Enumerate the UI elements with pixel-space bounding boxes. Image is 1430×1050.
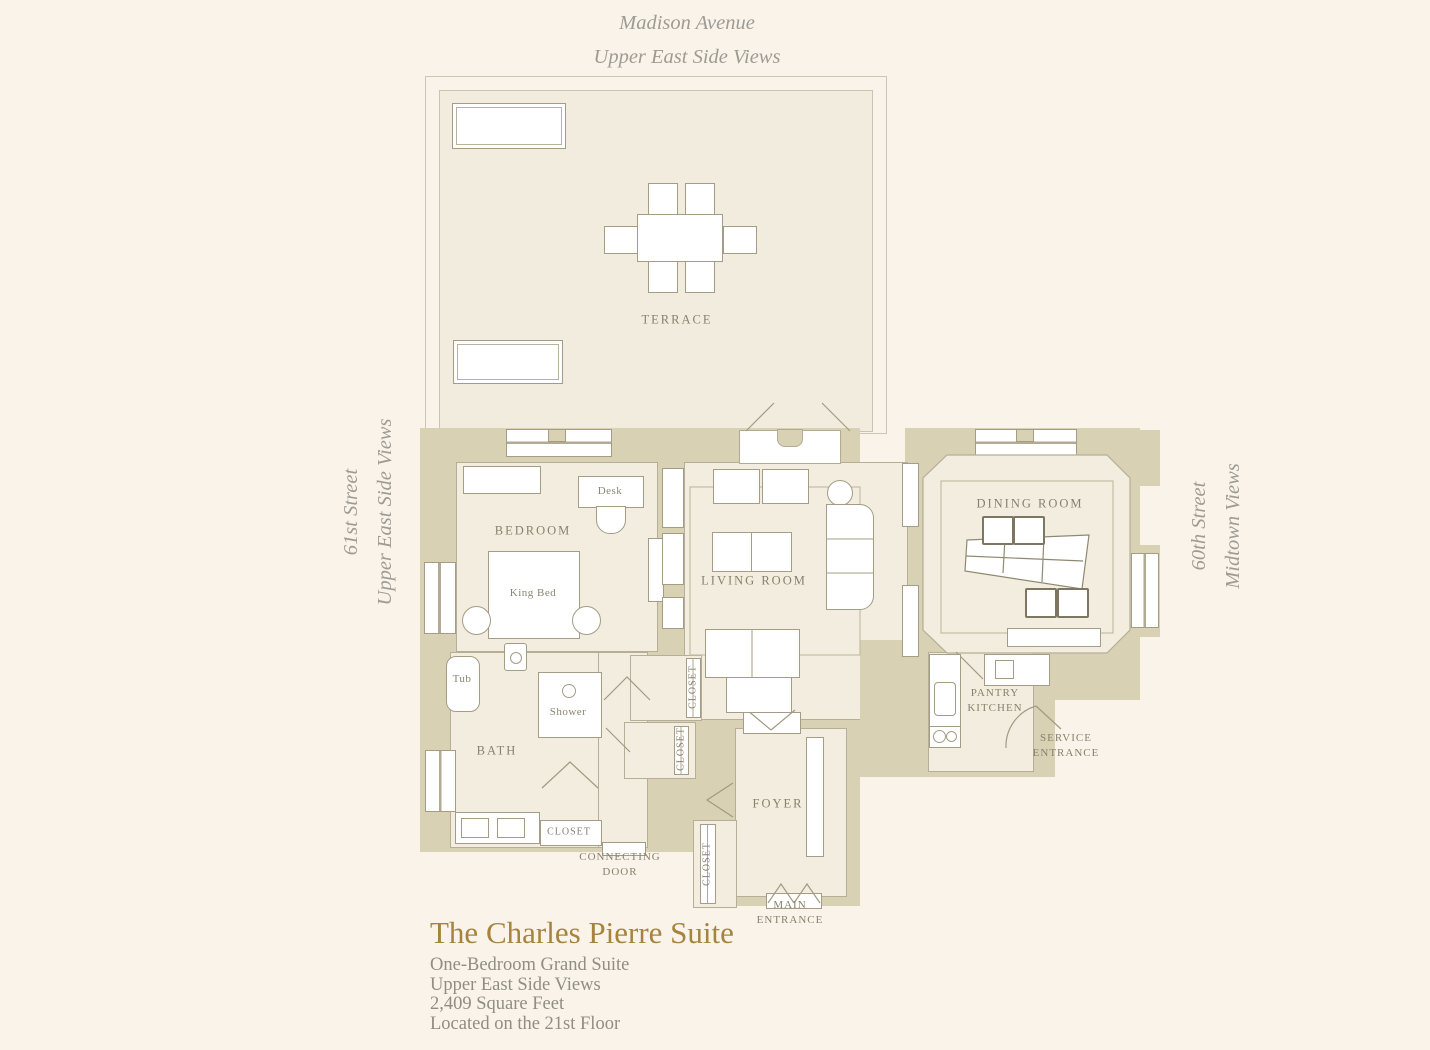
window-bath-west [425,750,456,812]
planter-inner-line [456,107,562,145]
connecting-door-line1: CONNECTING [579,850,661,865]
desk-label: Desk [598,485,623,497]
sink [497,818,525,838]
main-entrance-line1: MAIN [757,898,824,913]
sink [461,818,489,838]
street-label-top: Madison Avenue Upper East Side Views [437,6,937,74]
sofa-east [826,504,874,610]
dining-chair [1025,588,1057,618]
closet-d-label: CLOSET [702,842,713,886]
terrace-planter-top [452,103,566,149]
planter-inner-line [457,344,559,380]
dining-chair [1057,588,1089,618]
street-label-right: 60th Street Midtown Views [1182,326,1250,726]
tub-label: Tub [453,673,472,685]
window-mullion [1016,429,1034,442]
shower-stall [538,672,602,738]
window-dining-east [1131,553,1159,628]
living-west-builtin [662,533,684,585]
terrace-door-stop [777,429,803,447]
connecting-door-label: CONNECTING DOOR [579,850,661,880]
pantry-kitchen-label-line1: PANTRY [967,686,1022,701]
armchair [713,469,760,504]
floor-plan: Madison Avenue Upper East Side Views 61s… [0,0,1430,1050]
desk-chair [596,506,626,534]
sideboard [1007,628,1101,647]
side-table [827,480,853,506]
service-entrance-label: SERVICE ENTRANCE [1033,731,1100,761]
living-west-builtin [662,468,684,528]
terrace-chair [685,183,715,215]
nightstand [462,606,491,635]
suite-detail-area: 2,409 Square Feet [430,995,629,1015]
king-bed-label: King Bed [510,587,556,599]
suite-detail-type: One-Bedroom Grand Suite [430,956,629,976]
wall-dining-ne-bump [1138,430,1160,486]
street-right-line1: 60th Street [1182,326,1216,726]
sofa-south [705,629,800,678]
bench [726,677,792,713]
coffee-table [712,532,792,572]
dining-chair [982,516,1014,545]
suite-detail-views: Upper East Side Views [430,976,629,996]
armchair [762,469,809,504]
suite-details: One-Bedroom Grand Suite Upper East Side … [430,956,629,1034]
suite-title: The Charles Pierre Suite [430,915,734,951]
toilet-bowl [510,652,522,664]
window-bedroom-west [424,562,456,634]
terrace-chair [604,226,638,254]
terrace-label: TERRACE [642,313,713,328]
terrace-chair [648,183,678,215]
street-left-line1: 61st Street [334,312,368,712]
nightstand [572,606,601,635]
dining-chair [1013,516,1045,545]
connecting-door-line2: DOOR [579,865,661,880]
suite-detail-floor: Located on the 21st Floor [430,1015,629,1035]
pantry-cabinet [984,654,1050,686]
terrace-planter-bottom [453,340,563,384]
dining-room-label: DINING ROOM [976,497,1083,512]
pantry-sink [934,682,956,716]
bedroom-dresser [463,466,541,494]
street-left-line2: Upper East Side Views [368,312,402,712]
service-entrance-line2: ENTRANCE [1033,746,1100,761]
terrace-chair [723,226,757,254]
foyer-doorway [743,712,801,734]
foyer-label: FOYER [753,797,804,812]
main-entrance-line2: ENTRANCE [757,913,824,928]
living-west-builtin [662,597,684,629]
terrace-chair [648,261,678,293]
window-mullion [548,429,566,442]
foyer-floor [735,728,847,897]
terrace-chair [685,261,715,293]
shower-label: Shower [550,706,587,718]
terrace-table [637,214,723,262]
bath-label: BATH [477,744,518,759]
burner [933,730,946,743]
living-east-builtin [902,463,919,527]
closet-c-label: CLOSET [547,827,591,838]
bedroom-label: BEDROOM [495,524,572,539]
living-east-builtin [902,585,919,657]
foyer-console [806,737,824,857]
pantry-kitchen-label-line2: KITCHEN [967,701,1022,716]
pantry-kitchen-label: PANTRY KITCHEN [967,686,1022,716]
living-room-label: LIVING ROOM [701,574,807,589]
street-top-line1: Madison Avenue [437,6,937,40]
street-right-line2: Midtown Views [1216,326,1250,726]
main-entrance-label: MAIN ENTRANCE [757,898,824,928]
street-top-line2: Upper East Side Views [437,40,937,74]
closet-a-label: CLOSET [688,665,699,709]
closet-b-label: CLOSET [676,727,687,771]
shower-head [562,684,576,698]
service-entrance-line1: SERVICE [1033,731,1100,746]
pantry-cabinet-sink [995,660,1014,679]
street-label-left: 61st Street Upper East Side Views [334,312,402,712]
burner [946,731,957,742]
